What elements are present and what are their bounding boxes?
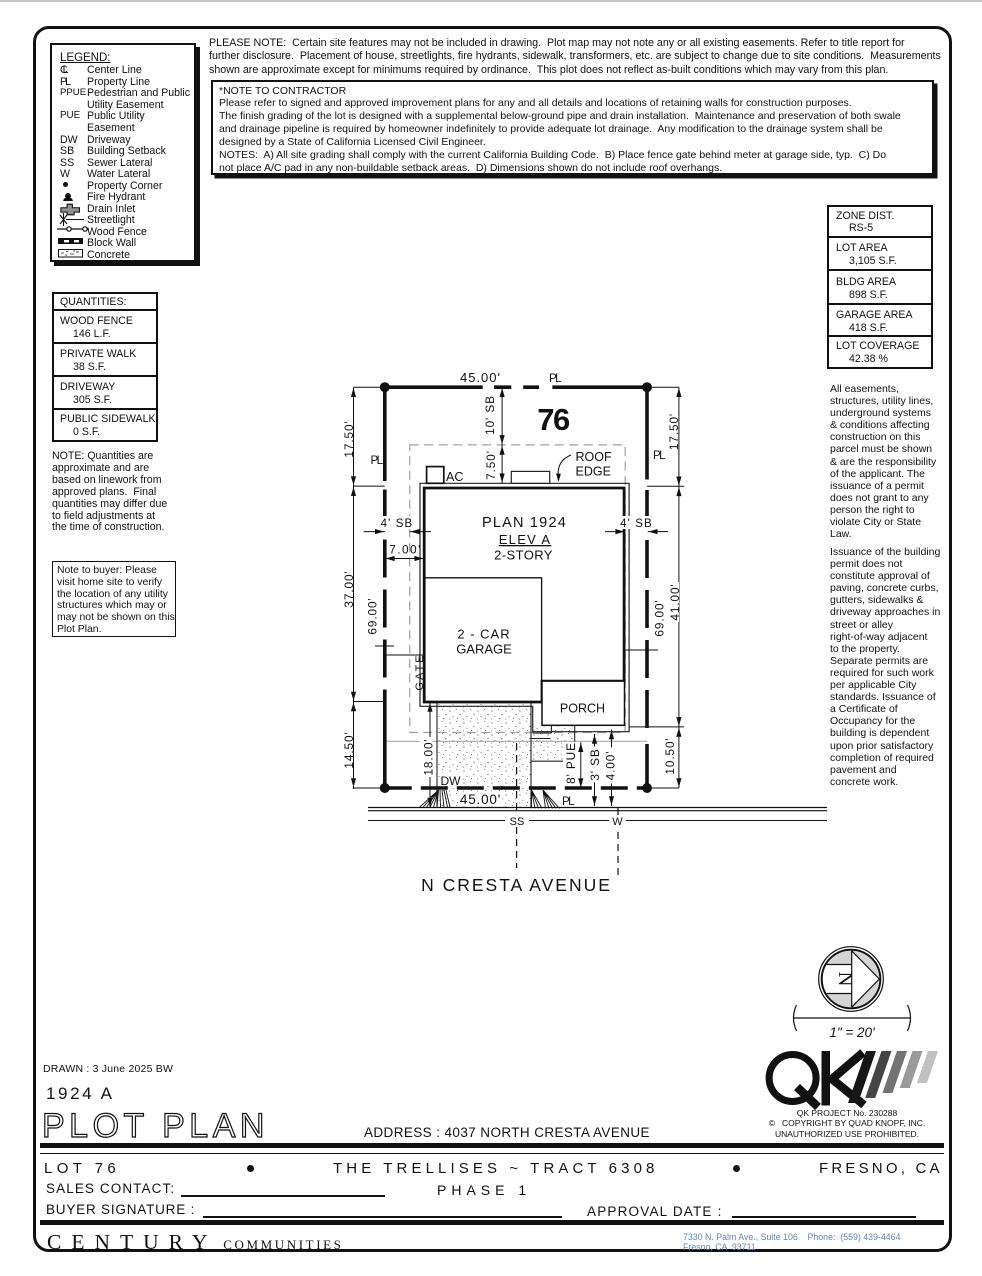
svg-text:4' SB: 4' SB [381,518,414,530]
svg-text:4' SB: 4' SB [620,518,653,530]
svg-text:GARAGE: GARAGE [456,642,512,657]
svg-text:10' SB: 10' SB [483,395,497,435]
svg-text:8' PUE: 8' PUE [564,742,578,784]
svg-text:41.00': 41.00' [668,583,682,620]
svg-text:PLAN 1924: PLAN 1924 [482,515,567,531]
svg-text:EDGE: EDGE [576,465,611,479]
svg-text:PL: PL [371,455,384,467]
svg-text:1" = 20': 1" = 20' [829,1025,875,1040]
svg-text:2-STORY: 2-STORY [494,548,553,563]
svg-text:69.00': 69.00' [366,597,380,634]
svg-text:PL: PL [562,796,575,808]
svg-text:3' SB: 3' SB [588,748,602,780]
svg-text:18.00': 18.00' [422,738,436,775]
svg-text:AC: AC [446,470,463,484]
svg-text:PL: PL [653,450,666,462]
svg-text:N: N [834,972,856,987]
svg-text:DW: DW [441,774,462,788]
svg-text:2 - CAR: 2 - CAR [457,627,510,642]
svg-text:69.00': 69.00' [653,599,667,636]
svg-text:SS: SS [510,816,525,828]
svg-text:PORCH: PORCH [560,702,605,716]
svg-text:10.50': 10.50' [663,737,677,774]
svg-text:37.00': 37.00' [342,570,356,607]
svg-text:ROOF: ROOF [576,450,612,464]
svg-text:4.00': 4.00' [604,751,618,781]
svg-text:45.00': 45.00' [460,370,501,385]
svg-text:7.00': 7.00' [389,543,422,557]
svg-text:N CRESTA AVENUE: N CRESTA AVENUE [421,875,612,895]
svg-text:GATE: GATE [414,653,426,690]
svg-text:ELEV A: ELEV A [499,532,552,547]
svg-text:PL: PL [549,373,562,385]
svg-text:45.00': 45.00' [460,792,501,807]
svg-text:76: 76 [537,402,570,437]
svg-text:17.50': 17.50' [667,413,681,450]
svg-text:7.50': 7.50' [484,450,498,480]
svg-text:W: W [612,816,623,828]
svg-text:14.50': 14.50' [342,731,356,768]
svg-text:17.50': 17.50' [342,420,356,457]
